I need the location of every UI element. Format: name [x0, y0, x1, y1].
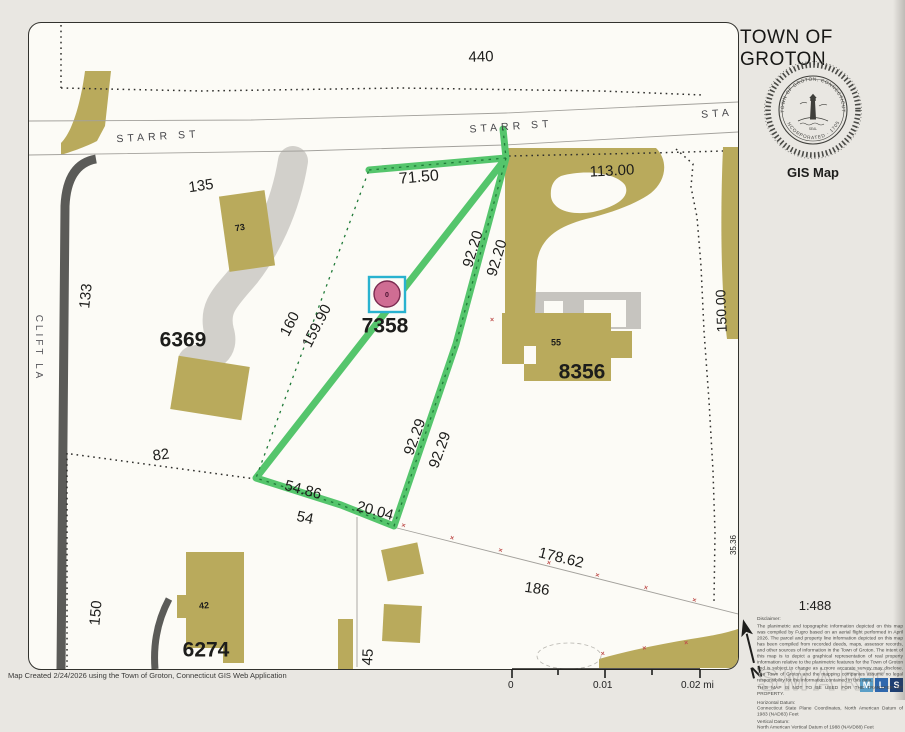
map-created-note: Map Created 2/24/2026 using the Town of … [8, 671, 287, 680]
seal-word: SEAL [809, 127, 817, 131]
town-seal: TOWN OF GROTON, CONNECTICUT INCORPORATED… [758, 55, 868, 165]
scale-ratio: 1:488 [785, 598, 845, 613]
horizontal-datum: Connecticut State Plane Coordinates, Nor… [757, 705, 903, 717]
road-edges [61, 159, 169, 669]
olive-areas [61, 71, 738, 669]
driveway-right-edge [721, 147, 738, 339]
scalebar-tick-001: 0.01 [593, 680, 612, 691]
map-canvas: × × × × × × × × × × × × × × × × × 0 [29, 23, 738, 669]
shed-2 [382, 604, 422, 643]
map-type-label: GIS Map [760, 165, 866, 180]
driveway-8356-loop [505, 148, 664, 313]
seal-lighthouse-icon [798, 95, 828, 126]
disclaimer-title: Disclaimer: [757, 616, 903, 622]
scalebar-tick-002: 0.02 mi [681, 680, 714, 691]
marker-symbol: 0 [385, 292, 389, 299]
vertical-datum: North American Vertical Datum of 1988 (N… [757, 724, 903, 730]
olive-strip-45 [338, 619, 353, 669]
gis-map-page: × × × × × × × × × × × × × × × × × 0 STAR… [0, 0, 905, 700]
scan-edge-shadow [893, 0, 905, 700]
disclaimer-transfer-note: THIS MAP IS NOT TO BE USED FOR THE TRANS… [757, 685, 903, 697]
driveway-6274-edge [155, 599, 169, 669]
building-73 [219, 190, 275, 272]
disclaimer-body: The planimetric and topographic informat… [757, 624, 903, 684]
clift-la-edge [61, 159, 96, 669]
shed-1 [381, 542, 424, 581]
driveway-top-left [61, 71, 111, 155]
single-x-mark: × [490, 317, 494, 324]
scalebar-tick-0: 0 [508, 680, 514, 691]
building-6369 [170, 356, 250, 421]
map-viewport[interactable]: × × × × × × × × × × × × × × × × × 0 [28, 22, 739, 670]
building-6274 [177, 552, 244, 663]
selected-point-marker[interactable]: 0 [369, 277, 405, 312]
disclaimer-block: Disclaimer: The planimetric and topograp… [757, 616, 903, 732]
